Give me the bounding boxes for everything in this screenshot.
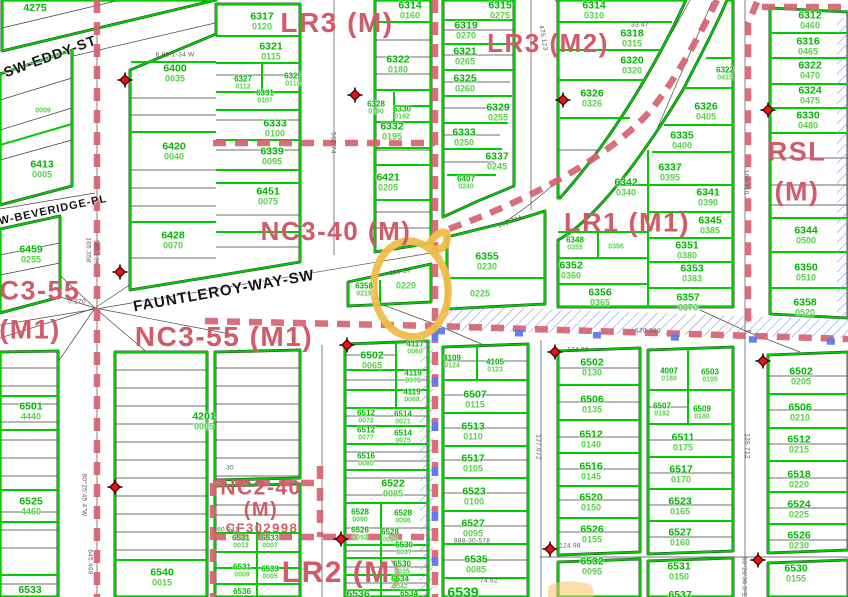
parcel-label-6531[interactable]: 65310009 <box>233 564 251 579</box>
street-label-SW-EDDY-ST: SW-EDDY-ST <box>1 32 98 80</box>
parcel-label-6512[interactable]: 65120072 <box>357 410 375 425</box>
parcel-label-6332[interactable]: 63320195 <box>380 121 403 141</box>
parcel-label-6353[interactable]: 63530383 <box>680 263 703 283</box>
parcel-label-6407[interactable]: 64070240 <box>457 176 475 191</box>
survey-dimension: 562.74 <box>330 132 337 154</box>
parcel-label-6322[interactable]: 63220470 <box>798 60 821 80</box>
survey-dimension: 645.469 <box>87 549 94 575</box>
parcel-label-6512[interactable]: 65120077 <box>357 427 375 442</box>
parcel-label-6319[interactable]: 63190270 <box>454 20 477 40</box>
parcel-label-6420[interactable]: 64200040 <box>162 141 185 161</box>
parcel-label-6507[interactable]: 65070115 <box>463 389 486 409</box>
street-labels-layer: SW-EDDY-STSW-BEVERIDGE-PLFAUNTLEROY-WAY-… <box>0 0 848 597</box>
parcel-label-6342[interactable]: 63420340 <box>614 177 637 197</box>
parcel-label-6358[interactable]: 63580219 <box>355 283 373 298</box>
parcel-label-6451[interactable]: 64510075 <box>256 186 279 206</box>
zoning-label-CF302998: CF302998 <box>226 522 299 535</box>
parcel-label-6339[interactable]: 63390095 <box>260 146 283 166</box>
parcel-label-6511[interactable]: 65110175 <box>672 432 695 452</box>
parcel-label-6527[interactable]: 65270095 <box>461 518 484 538</box>
parcel-label-6517[interactable]: 65170105 <box>461 453 484 473</box>
parcel-label-6512[interactable]: 65120215 <box>787 434 810 454</box>
parcel-label-6528[interactable]: 65280096 <box>394 510 412 525</box>
parcel-label-6344[interactable]: 63440500 <box>794 225 817 245</box>
parcel-label-6335[interactable]: 63350400 <box>670 130 693 150</box>
survey-dimension: 162.704 <box>497 214 523 229</box>
zoning-label-NC3-40-M-: NC3-40 (M) <box>261 218 412 244</box>
parcel-label-6356[interactable]: 63560365 <box>588 287 611 307</box>
parcel-label-6316[interactable]: 63160465 <box>796 36 819 56</box>
parcel-label-6357[interactable]: 63570370 <box>676 292 699 312</box>
zoning-label-LR1-M1-: LR1 (M1) <box>564 210 690 237</box>
survey-dimension: 120 360 <box>635 327 661 335</box>
parcel-label-6326[interactable]: 63260405 <box>694 101 717 121</box>
parcel-label-6528[interactable]: 65280090 <box>351 509 369 524</box>
parcel-label-6320[interactable]: 63200320 <box>620 55 643 75</box>
survey-dimension: 139.712 <box>744 433 751 459</box>
survey-dimension: 0.270 <box>68 299 86 306</box>
zoning-label--M-: (M) <box>244 500 278 520</box>
parcel-label-6501[interactable]: 65014440 <box>19 401 42 421</box>
parcel-labels-layer: 4275000964130005645902556400003564200040… <box>0 0 848 597</box>
parcel-label-0220[interactable]: 0220 <box>396 282 416 291</box>
parcel-label-6528[interactable]: 65280094 <box>381 529 399 544</box>
dimension-labels-layer: 8 86-1-34 W562.74475.123162.704160.11016… <box>0 0 848 597</box>
parcel-label-6502[interactable]: 65020205 <box>789 366 812 386</box>
parcel-label-6352[interactable]: 63520360 <box>559 260 582 280</box>
parcel-label-0225[interactable]: 0225 <box>470 290 490 299</box>
parcel-label-6536[interactable]: 6536 <box>233 588 251 596</box>
zoning-map-canvas[interactable]: 8 86-1-34 W562.74475.123162.704160.11016… <box>0 0 848 597</box>
survey-dimension: 165.358 <box>85 237 92 263</box>
zoning-labels-layer: LR3 (M)LR3 (M2)LR1 (M1)RSL(M)NC3-40 (M)C… <box>0 0 848 597</box>
parcel-label-6536[interactable]: 6536 <box>346 589 369 597</box>
parcel-label-6526[interactable]: 65260092 <box>351 527 369 542</box>
parcel-label-0356[interactable]: 0356 <box>608 244 624 251</box>
survey-dimension: 137.672 <box>535 434 542 460</box>
parcel-label-6526[interactable]: 65260230 <box>787 530 810 550</box>
zoning-label-LR3-M-: LR3 (M) <box>280 9 393 37</box>
parcel-label-6522[interactable]: 65220085 <box>381 478 404 498</box>
parcel-label-6513[interactable]: 65130110 <box>461 421 484 441</box>
parcel-label-6533[interactable]: 65330007 <box>261 535 279 550</box>
parcel-label-6345[interactable]: 63450385 <box>698 215 721 235</box>
parcel-label-6518[interactable]: 65180220 <box>787 469 810 489</box>
zoning-label-LR2-M-: LR2 (M) <box>282 558 402 588</box>
parcel-label-6509[interactable]: 65090180 <box>693 406 711 421</box>
parcel-label-6516[interactable]: 65160080 <box>357 453 375 468</box>
parcel-label-6531[interactable]: 65310150 <box>667 561 690 581</box>
parcel-label-6326[interactable]: 63260326 <box>580 88 603 108</box>
parcel-label-6328[interactable]: 63280190 <box>367 101 385 116</box>
survey-dimension: 30 <box>226 465 234 472</box>
parcel-label-6514[interactable]: 65140075 <box>394 430 412 445</box>
parcel-label-6530[interactable]: 65300037 <box>395 542 413 557</box>
survey-dimension: 33.47 <box>631 22 649 29</box>
parcel-label-4119[interactable]: 41190068 <box>403 389 420 404</box>
parcel-label-6337[interactable]: 63370245 <box>485 151 508 171</box>
parcel-label-6530[interactable]: 65300155 <box>784 563 807 583</box>
parcel-label-6535[interactable]: 65350085 <box>464 554 487 574</box>
survey-dimension: 8 86-1-34 W <box>155 52 194 59</box>
parcel-label-6330[interactable]: 63300192 <box>393 106 411 121</box>
parcel-label-6531[interactable]: 65310013 <box>232 535 250 550</box>
parcel-label-6325[interactable]: 63250110 <box>284 73 302 88</box>
parcel-label-6358[interactable]: 63580520 <box>793 297 816 317</box>
zoning-label-NC2-40: NC2-40 <box>220 478 301 499</box>
parcel-label-6517[interactable]: 65170170 <box>669 464 692 484</box>
parcel-label-6539[interactable]: 6539 <box>447 585 478 597</box>
parcel-label-6413[interactable]: 64130005 <box>30 159 53 179</box>
zoning-label-LR3-M2-: LR3 (M2) <box>487 30 609 56</box>
parcel-label-6512[interactable]: 65120140 <box>579 429 602 449</box>
parcel-label-4275[interactable]: 4275 <box>23 3 46 14</box>
parcel-label-6503[interactable]: 65030195 <box>701 369 719 384</box>
survey-dimension: 360.941 <box>213 527 239 534</box>
parcel-label-6507[interactable]: 65070182 <box>653 403 671 418</box>
survey-dimension: 185.139 <box>93 239 100 265</box>
parcel-label-6537[interactable]: 6537 <box>668 590 691 597</box>
parcel-label-6516[interactable]: 65160145 <box>579 461 602 481</box>
parcel-label-4105[interactable]: 41050123 <box>486 359 504 374</box>
parcel-label-6428[interactable]: 64280070 <box>161 230 184 250</box>
parcel-label-6502[interactable]: 65020130 <box>580 357 603 377</box>
parcel-label-6321[interactable]: 63210265 <box>453 46 476 66</box>
survey-dimension: 160.110 <box>743 169 750 194</box>
parcel-label-6314[interactable]: 63140310 <box>582 0 605 20</box>
parcel-label-6527[interactable]: 65270160 <box>668 527 691 547</box>
parcel-label-6329[interactable]: 63290255 <box>486 102 509 122</box>
parcel-label-4109[interactable]: 41090124 <box>443 355 461 370</box>
parcel-label-6523[interactable]: 65230100 <box>462 486 485 506</box>
parcel-label-6315[interactable]: 63150275 <box>488 0 511 20</box>
parcel-label-6526[interactable]: 65260155 <box>580 524 603 544</box>
parcel-label-6524[interactable]: 65240225 <box>787 499 810 519</box>
zoning-label--M-: (M) <box>775 179 820 206</box>
survey-dimension: 475.123 <box>537 25 548 51</box>
parcel-label-6341[interactable]: 63410390 <box>696 187 719 207</box>
parcel-label-6317[interactable]: 63170120 <box>250 11 273 31</box>
parcel-label-6523[interactable]: 65230165 <box>668 496 691 516</box>
survey-dimension: 888-30-578 <box>454 538 490 545</box>
survey-dimension: 116.39 <box>389 267 411 277</box>
parcel-label-6514[interactable]: 65140071 <box>394 411 412 426</box>
parcel-label-6337[interactable]: 63370395 <box>658 162 681 182</box>
parcel-label-6314[interactable]: 63140160 <box>398 0 421 20</box>
zoning-label-NC3-55-M1-: NC3-55 (M1) <box>135 323 313 351</box>
parcel-label-6534[interactable]: 6534 <box>400 590 418 597</box>
parcel-label-4007[interactable]: 40070189 <box>660 368 678 383</box>
parcel-label-6525[interactable]: 65254460 <box>19 496 42 516</box>
parcel-label-6327[interactable]: 63270112 <box>234 76 252 91</box>
parcel-label-6530[interactable]: 65300035 <box>393 561 411 576</box>
zoning-label-RSL: RSL <box>768 139 827 166</box>
survey-dimension: 80°25'45.4"W <box>81 474 88 517</box>
parcel-label-6502[interactable]: 65020065 <box>360 350 383 370</box>
parcel-label-6351[interactable]: 63510380 <box>675 240 698 260</box>
parcel-label-6321[interactable]: 63210115 <box>259 41 282 61</box>
survey-dimension: 124.98 <box>559 543 581 550</box>
street-label-FAUNTLEROY-WAY-SW: FAUNTLEROY-WAY-SW <box>132 267 316 316</box>
parcel-label-6421[interactable]: 64210205 <box>376 172 399 192</box>
parcel-label-6324[interactable]: 63240475 <box>798 85 821 105</box>
parcel-label-6400[interactable]: 64000035 <box>163 63 186 83</box>
parcel-label-6333[interactable]: 63330250 <box>452 127 475 147</box>
street-label-SW-BEVERIDGE-PL: SW-BEVERIDGE-PL <box>0 193 108 229</box>
parcel-label-6533[interactable]: 6533 <box>18 585 41 596</box>
parcel-label-0009[interactable]: 0009 <box>35 108 51 115</box>
parcel-label-6540[interactable]: 65400015 <box>150 567 173 587</box>
parcel-label-6312[interactable]: 63120460 <box>798 10 821 30</box>
parcel-label-6532[interactable]: 65320095 <box>580 556 603 576</box>
parcel-label-4117[interactable]: 41170060 <box>406 341 423 356</box>
zoning-label--M1-: (M1) <box>0 317 61 344</box>
parcel-label-6318[interactable]: 63180315 <box>620 28 643 48</box>
zoning-label-C3-55: C3-55 <box>0 278 81 305</box>
parcel-label-6520[interactable]: 65200150 <box>579 492 602 512</box>
survey-dimension: 80°26'36.5"E <box>741 556 748 597</box>
parcel-label-6322[interactable]: 63220415 <box>716 67 734 82</box>
parcel-label-6355[interactable]: 63550230 <box>475 251 498 271</box>
parcel-label-4201[interactable]: 42010005 <box>192 411 215 431</box>
survey-dimension: 74.62 <box>480 578 498 585</box>
parcel-label-6333[interactable]: 63330100 <box>263 118 286 138</box>
parcel-label-6459[interactable]: 64590255 <box>19 244 42 264</box>
survey-dimension: 124.98 <box>567 347 589 354</box>
parcel-label-6325[interactable]: 63250260 <box>453 73 476 93</box>
map-labels: 8 86-1-34 W562.74475.123162.704160.11016… <box>0 0 848 597</box>
parcel-label-6348[interactable]: 63480355 <box>566 237 584 252</box>
parcel-label-6331[interactable]: 63310107 <box>256 90 274 105</box>
parcel-label-6322[interactable]: 63220180 <box>386 54 409 74</box>
parcel-label-4119[interactable]: 41190070 <box>404 370 421 385</box>
parcel-label-6506[interactable]: 65060210 <box>788 402 811 422</box>
parcel-label-6330[interactable]: 63300480 <box>796 110 819 130</box>
parcel-label-6533[interactable]: 65330005 <box>261 566 279 581</box>
parcel-label-6350[interactable]: 63500510 <box>794 262 817 282</box>
parcel-label-6534[interactable]: 65340042 <box>391 576 409 591</box>
parcel-label-6506[interactable]: 65060135 <box>580 394 603 414</box>
